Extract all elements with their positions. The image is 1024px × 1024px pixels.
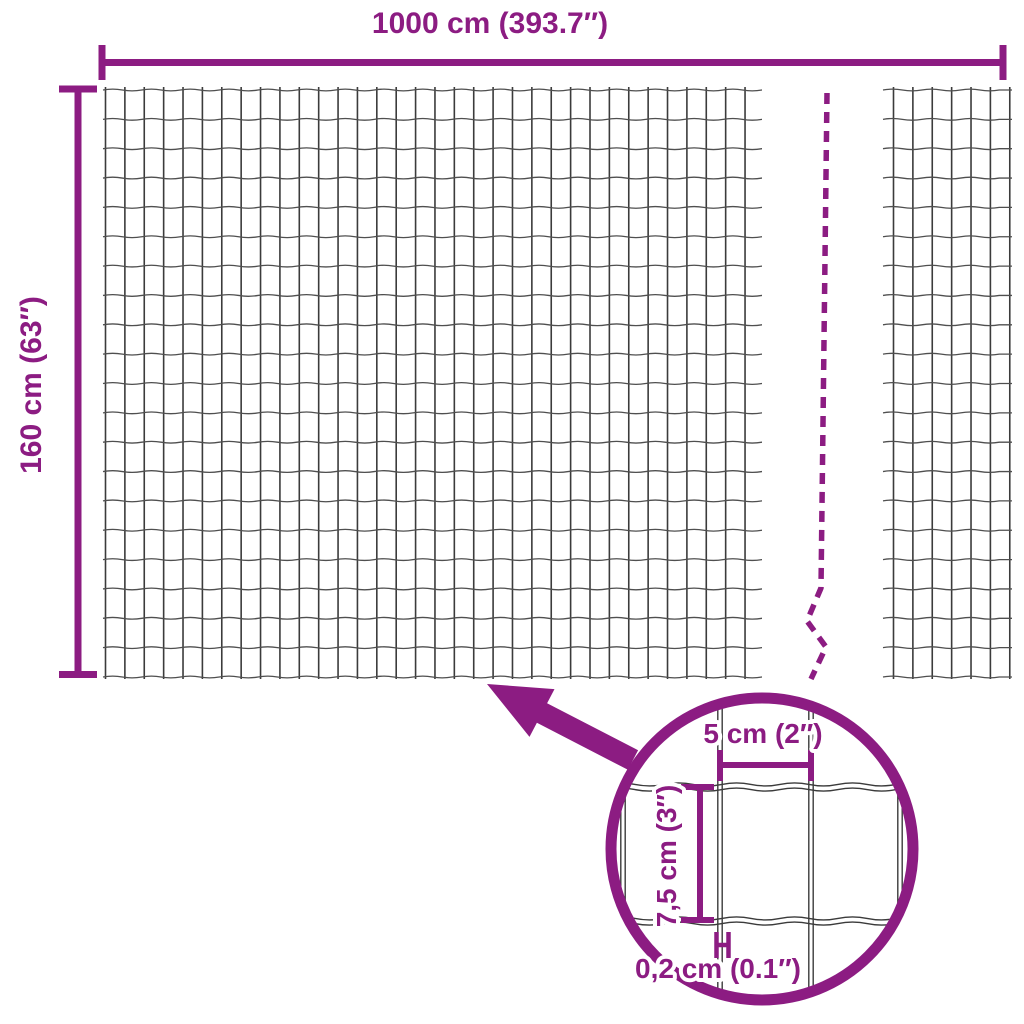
- horizontal-wire: [883, 441, 1012, 443]
- fence-dimension-diagram: 1000 cm (393.7″) 160 cm (63″): [0, 0, 1024, 1024]
- horizontal-wire: [883, 177, 1012, 179]
- cell-width-label: 5 cm (2″): [703, 718, 822, 749]
- height-dimension: 160 cm (63″): [15, 89, 97, 675]
- horizontal-wire: [883, 676, 1012, 678]
- horizontal-wire: [883, 383, 1012, 385]
- horizontal-wire: [883, 207, 1012, 209]
- length-break-dashed-line: [807, 93, 827, 679]
- horizontal-wire: [883, 148, 1012, 150]
- horizontal-wire: [883, 353, 1012, 355]
- horizontal-wire: [883, 236, 1012, 238]
- zoom-arrow-icon: [487, 684, 638, 770]
- horizontal-wire: [883, 617, 1012, 619]
- horizontal-wire: [883, 89, 1012, 91]
- height-dimension-label: 160 cm (63″): [15, 296, 48, 474]
- horizontal-wire: [883, 647, 1012, 649]
- horizontal-wire: [883, 588, 1012, 590]
- width-dimension-label: 1000 cm (393.7″): [372, 7, 608, 40]
- cell-height-dimension: [681, 787, 714, 920]
- wire-thickness-label: 0,2 cm (0.1″): [635, 953, 801, 984]
- mesh-panel-main: [103, 87, 762, 679]
- horizontal-wire: [883, 265, 1012, 267]
- horizontal-wire: [883, 295, 1012, 297]
- horizontal-wire: [883, 500, 1012, 502]
- diagram-svg: 1000 cm (393.7″) 160 cm (63″): [0, 0, 1024, 1024]
- horizontal-wire: [883, 471, 1012, 473]
- mesh-panel-right: [883, 87, 1012, 679]
- horizontal-wire: [883, 119, 1012, 121]
- horizontal-wire: [883, 324, 1012, 326]
- cell-width-dimension: [720, 750, 811, 781]
- horizontal-wire: [883, 559, 1012, 561]
- cell-height-label: 7,5 cm (3″): [651, 785, 682, 928]
- horizontal-wire: [883, 412, 1012, 414]
- zoom-callout: 5 cm (2″) 7,5 cm (3″) 0,2 cm (0.1″): [606, 692, 920, 1008]
- horizontal-wire: [883, 529, 1012, 531]
- width-dimension: 1000 cm (393.7″): [102, 7, 1003, 80]
